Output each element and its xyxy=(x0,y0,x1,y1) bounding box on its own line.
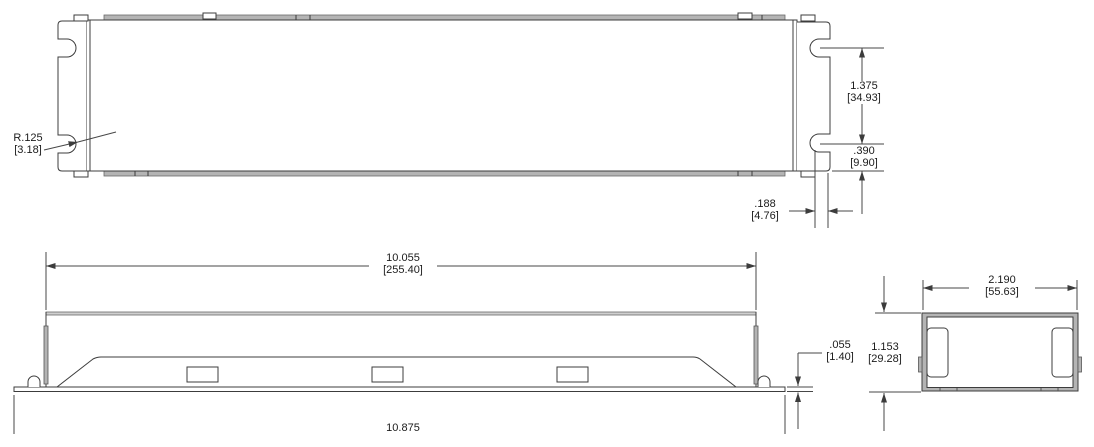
value-inches: 1.375 xyxy=(834,81,894,93)
value-inches: R.125 xyxy=(6,133,50,145)
dimension-label-slot-width: .188 [4.76] xyxy=(742,199,788,222)
value-mm: [29.28] xyxy=(855,354,915,366)
value-inches: .188 xyxy=(742,199,788,211)
side-view-dimensions xyxy=(14,252,822,434)
value-mm: [55.63] xyxy=(971,287,1033,299)
value-inches: 1.153 xyxy=(855,342,915,354)
value-mm: [34.93] xyxy=(834,93,894,105)
value-inches: 10.875 xyxy=(374,423,432,435)
drawing-canvas: R.125 [3.18] 1.375 [34.93] .390 [9.90] .… xyxy=(0,0,1094,447)
value-inches: 10.055 xyxy=(371,253,435,265)
technical-drawing-linework xyxy=(0,0,1094,447)
dimension-label-slot-to-edge: .390 [9.90] xyxy=(836,146,892,169)
dimension-label-slot-spacing: 1.375 [34.93] xyxy=(832,81,896,104)
value-inches: .390 xyxy=(836,146,892,158)
value-inches: 2.190 xyxy=(971,275,1033,287)
dimension-label-body-length: 10.055 [255.40] xyxy=(369,253,437,276)
value-mm: [255.40] xyxy=(371,265,435,277)
dimension-label-body-height: 1.153 [29.28] xyxy=(855,342,915,365)
top-view xyxy=(58,13,830,177)
dimension-label-slot-radius: R.125 [3.18] xyxy=(6,133,50,156)
end-view xyxy=(919,313,1082,391)
side-view xyxy=(14,312,785,392)
value-mm: [3.18] xyxy=(6,145,50,157)
dimension-label-body-width: 2.190 [55.63] xyxy=(969,275,1035,298)
value-mm: [4.76] xyxy=(742,211,788,223)
value-mm: [9.90] xyxy=(836,158,892,170)
dimension-label-overall-length: 10.875 xyxy=(374,423,432,435)
